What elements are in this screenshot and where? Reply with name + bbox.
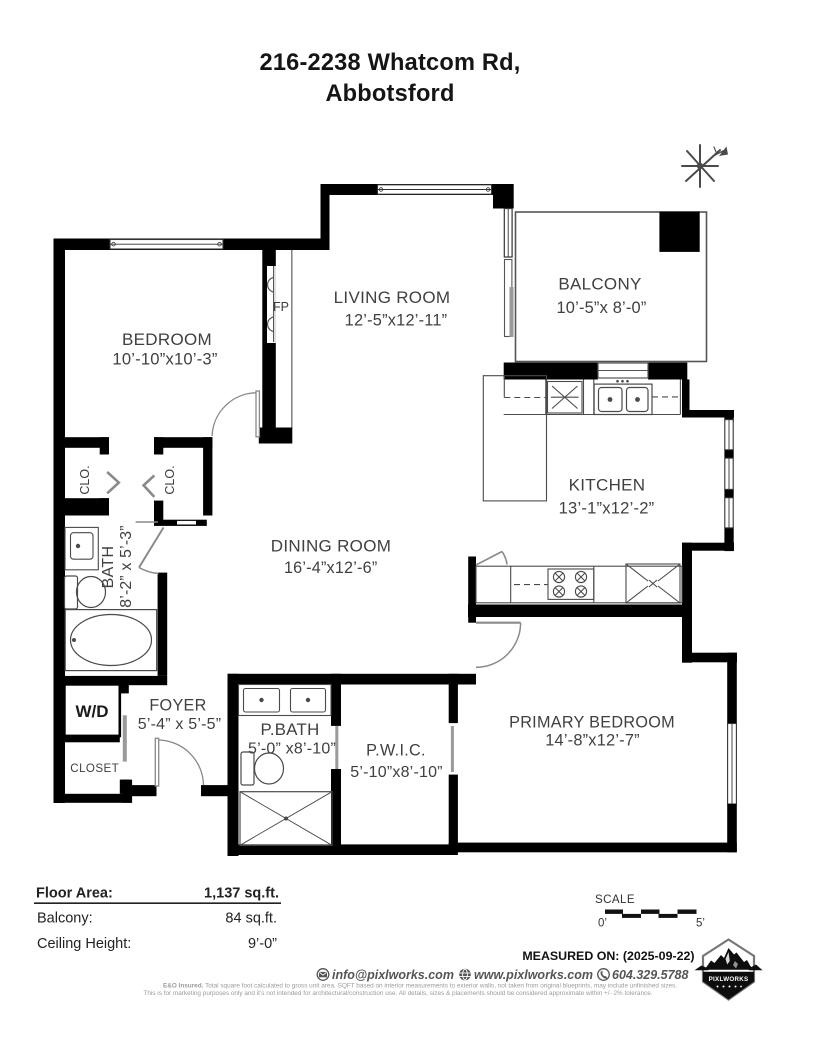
svg-text:Balcony:: Balcony: — [37, 911, 93, 927]
svg-text:This is for marketing purposes: This is for marketing purposes only and … — [143, 990, 652, 997]
svg-text:www.pixlworks.com: www.pixlworks.com — [474, 968, 593, 982]
svg-text:10’-5”x 8’-0”: 10’-5”x 8’-0” — [556, 299, 646, 317]
svg-text:Floor Area:: Floor Area: — [36, 886, 113, 902]
svg-text:CLO.: CLO. — [78, 465, 92, 494]
svg-text:LIVING ROOM: LIVING ROOM — [334, 288, 451, 307]
svg-text:DINING ROOM: DINING ROOM — [271, 537, 391, 556]
svg-text:BEDROOM: BEDROOM — [122, 330, 212, 349]
svg-text:P.BATH: P.BATH — [260, 720, 319, 739]
svg-text:CLO.: CLO. — [163, 465, 177, 494]
svg-text:16’-4”x12’-6”: 16’-4”x12’-6” — [284, 559, 377, 577]
svg-text:PIXLWORKS: PIXLWORKS — [709, 976, 749, 983]
svg-text:W/D: W/D — [75, 702, 108, 721]
svg-text:216-2238 Whatcom Rd,: 216-2238 Whatcom Rd, — [260, 50, 521, 76]
svg-text:14’-8”x12’-7”: 14’-8”x12’-7” — [545, 732, 640, 750]
svg-text:KITCHEN: KITCHEN — [569, 476, 646, 495]
svg-text:Abbotsford: Abbotsford — [325, 81, 454, 107]
svg-text:10’-10”x10’-3”: 10’-10”x10’-3” — [112, 350, 217, 369]
svg-text:P.W.I.C.: P.W.I.C. — [366, 742, 426, 760]
svg-text:CLOSET: CLOSET — [70, 762, 119, 775]
svg-text:1,137 sq.ft.: 1,137 sq.ft. — [204, 886, 279, 902]
svg-text:8’-2” x 5’-3”: 8’-2” x 5’-3” — [118, 525, 135, 607]
svg-text:5’-10”x8’-10”: 5’-10”x8’-10” — [350, 764, 442, 781]
svg-text:E&O Insured. Total square foo: E&O Insured. Total square foot calculate… — [163, 983, 677, 990]
svg-text:PRIMARY BEDROOM: PRIMARY BEDROOM — [509, 714, 675, 732]
svg-text:0’: 0’ — [598, 918, 607, 930]
svg-text:info@pixlworks.com: info@pixlworks.com — [332, 968, 454, 982]
svg-text:604.329.5788: 604.329.5788 — [612, 968, 689, 982]
svg-text:FP: FP — [273, 300, 289, 314]
svg-text:9’-0”: 9’-0” — [248, 936, 277, 952]
svg-text:13’-1”x12’-2”: 13’-1”x12’-2” — [559, 499, 655, 518]
svg-text:FOYER: FOYER — [149, 697, 206, 715]
svg-text:Ceiling Height:: Ceiling Height: — [37, 936, 131, 952]
svg-text:5’-4” x 5’-5”: 5’-4” x 5’-5” — [138, 716, 222, 733]
svg-text:12’-5”x12’-11”: 12’-5”x12’-11” — [345, 312, 448, 330]
svg-text:BALCONY: BALCONY — [558, 275, 641, 294]
svg-text:5’: 5’ — [696, 918, 705, 930]
svg-text:84 sq.ft.: 84 sq.ft. — [225, 911, 277, 927]
svg-text:SCALE: SCALE — [595, 893, 635, 906]
svg-text:MEASURED ON: (2025-09-22): MEASURED ON: (2025-09-22) — [522, 949, 694, 963]
